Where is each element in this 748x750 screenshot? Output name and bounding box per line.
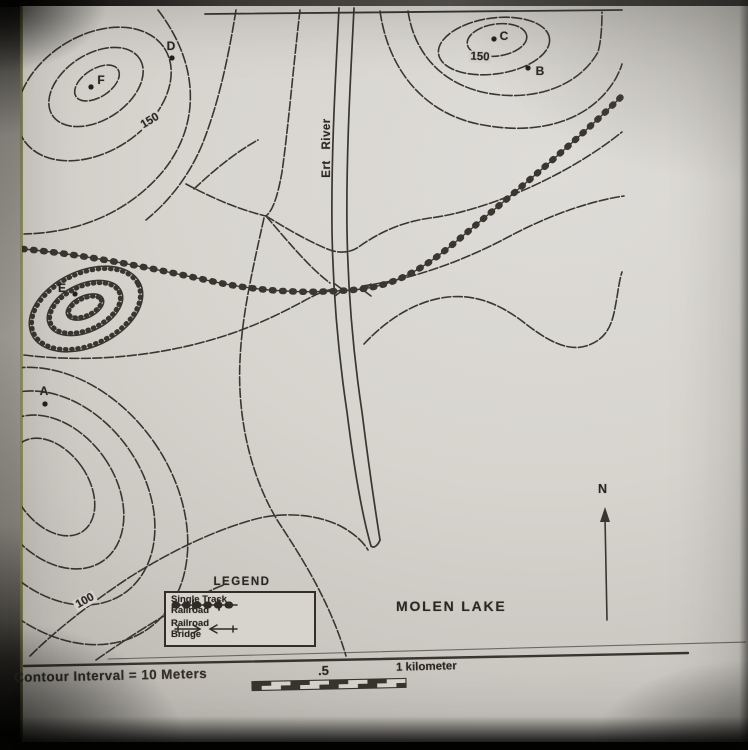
scale-kilometer-label: 1 kilometer	[396, 660, 457, 673]
north-label: N	[598, 482, 607, 496]
depression-hachures	[19, 253, 153, 366]
contour-line	[194, 140, 258, 189]
map-border-bottom	[24, 653, 688, 666]
legend-box: Single Track Railroad Railroad Bridge	[164, 591, 316, 647]
photographed-topographic-map: Ert River MOLEN LAKE N ABCDEF 150150100 …	[0, 0, 748, 750]
scale-half-label: .5	[318, 663, 329, 678]
north-arrow-shaft	[605, 517, 607, 620]
map-drawing	[0, 0, 748, 750]
river-label: Ert River	[321, 100, 333, 196]
river-bank-right	[347, 8, 380, 540]
contour-line	[24, 10, 190, 234]
river	[332, 8, 380, 547]
legend-row-single-track-railroad: Single Track Railroad	[171, 595, 313, 619]
contour-line	[0, 389, 152, 595]
map-point-label-B: B	[536, 64, 545, 78]
map-point-dot-E	[73, 292, 78, 297]
north-arrow	[600, 507, 610, 620]
map-point-label-C: C	[500, 29, 509, 43]
map-point-label-F: F	[97, 73, 104, 87]
depression-hachures	[66, 292, 105, 322]
single-track-railroad-symbol	[171, 597, 241, 613]
map-border-top	[205, 10, 622, 14]
railroad-bridge-symbol	[171, 621, 241, 637]
map-point-dot-B	[526, 66, 531, 71]
scale-bar	[252, 678, 406, 690]
river-bank-left	[332, 8, 371, 546]
contour-line	[266, 132, 622, 252]
map-title: MOLEN LAKE	[396, 598, 507, 614]
map-point-dot-D	[170, 56, 175, 61]
river-mouth	[371, 540, 380, 547]
map-point-dot-C	[492, 37, 497, 42]
contour-line	[266, 216, 330, 283]
map-point-dot-F	[89, 85, 94, 90]
north-arrow-head	[600, 507, 610, 522]
legend-title: LEGEND	[204, 576, 280, 588]
contour-elevation-label-1: 150	[468, 50, 492, 63]
map-point-label-D: D	[167, 39, 176, 53]
legend-row-railroad-bridge: Railroad Bridge	[171, 619, 313, 643]
map-point-dot-A	[43, 402, 48, 407]
contour-group-hill-F	[0, 0, 236, 234]
map-point-label-E: E	[58, 281, 66, 295]
contour-line	[0, 422, 112, 552]
contour-line-lake-shore	[364, 272, 622, 347]
contour-line	[186, 184, 266, 216]
contour-line	[0, 0, 196, 188]
map-point-label-A: A	[40, 384, 49, 398]
contour-line	[266, 10, 300, 216]
